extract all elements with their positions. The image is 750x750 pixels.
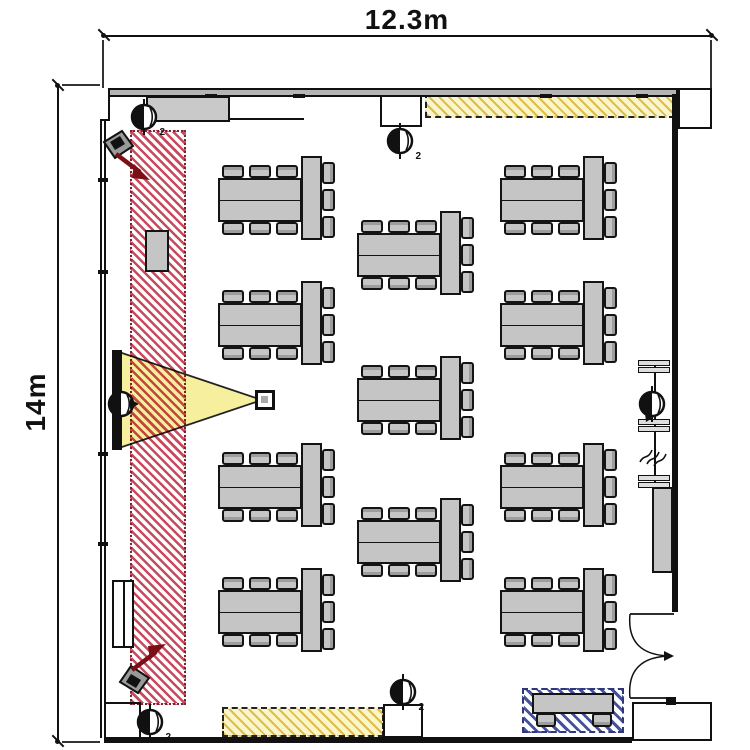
- chair: [558, 347, 580, 360]
- chair: [415, 277, 437, 290]
- chair: [504, 577, 526, 590]
- fixture-count: 2: [418, 702, 424, 713]
- floor-plan: 12.3m 14m: [0, 0, 750, 750]
- chair: [504, 222, 526, 235]
- fixture-count: 2: [415, 151, 421, 162]
- table: [357, 233, 441, 277]
- chair: [361, 277, 383, 290]
- table-seam: [220, 487, 300, 488]
- chair: [322, 574, 335, 596]
- ceiling-speaker-icon: 2: [383, 122, 417, 160]
- partition-stack-bar: [638, 360, 670, 366]
- chair: [461, 389, 474, 411]
- bottom-storage-zone: [222, 707, 384, 737]
- table-seam: [502, 612, 582, 613]
- chair: [604, 162, 617, 184]
- ceiling-speaker-icon: 2: [386, 673, 420, 711]
- chair: [322, 503, 335, 525]
- ceiling-speaker-icon: [635, 385, 669, 423]
- chair: [276, 634, 298, 647]
- top-wall-tick: [636, 94, 648, 98]
- ceiling-speaker-glyph: [383, 122, 417, 160]
- chair: [322, 216, 335, 238]
- table-group: [218, 568, 335, 656]
- chair: [388, 277, 410, 290]
- chair: [592, 713, 612, 727]
- chair: [322, 314, 335, 336]
- table-seam: [502, 200, 582, 201]
- stage-speaker-icon: [112, 634, 170, 698]
- table-group: [218, 443, 335, 531]
- room: 2 2 2: [0, 0, 750, 750]
- table: [583, 568, 604, 652]
- chair: [558, 222, 580, 235]
- chair: [531, 222, 553, 235]
- ceiling-speaker-glyph: [635, 385, 669, 423]
- table: [218, 178, 302, 222]
- table-group: [500, 443, 617, 531]
- chair: [558, 452, 580, 465]
- chair: [604, 341, 617, 363]
- chair: [504, 452, 526, 465]
- chair: [531, 577, 553, 590]
- table: [301, 443, 322, 527]
- chair: [388, 422, 410, 435]
- chair: [604, 287, 617, 309]
- table: [218, 590, 302, 634]
- chair: [531, 509, 553, 522]
- left-wall-step-v: [108, 88, 110, 121]
- table: [301, 156, 322, 240]
- table: [500, 590, 584, 634]
- table-seam: [220, 325, 300, 326]
- chair: [249, 165, 271, 178]
- ceiling-speaker-glyph: [386, 673, 420, 711]
- chair: [604, 476, 617, 498]
- chair: [604, 574, 617, 596]
- projector: [255, 390, 275, 410]
- table: [583, 281, 604, 365]
- chair: [531, 452, 553, 465]
- partition-stack-bar: [638, 367, 670, 373]
- chair: [415, 564, 437, 577]
- table-group: [500, 156, 617, 244]
- table: [500, 178, 584, 222]
- chair: [558, 634, 580, 647]
- chair: [276, 452, 298, 465]
- table: [583, 156, 604, 240]
- table-seam: [359, 255, 439, 256]
- chair: [249, 577, 271, 590]
- chair: [461, 244, 474, 266]
- table: [357, 520, 441, 564]
- left-wall-tick: [98, 542, 108, 546]
- fixture-count: 2: [159, 127, 165, 138]
- chair: [361, 220, 383, 233]
- chair: [276, 222, 298, 235]
- chair: [322, 341, 335, 363]
- chair: [604, 503, 617, 525]
- double-door: [618, 606, 678, 706]
- partition-stack-bar: [638, 426, 670, 432]
- table: [440, 498, 461, 582]
- projector-lens: [261, 396, 268, 403]
- chair: [461, 217, 474, 239]
- partition-stack-bar: [638, 482, 670, 488]
- chair: [504, 290, 526, 303]
- sound-desk-shelf-line: [228, 118, 304, 120]
- chair: [461, 416, 474, 438]
- left-wall: [100, 120, 106, 738]
- chair: [531, 165, 553, 178]
- chair: [604, 628, 617, 650]
- chair: [415, 507, 437, 520]
- table-seam: [502, 487, 582, 488]
- chair: [531, 290, 553, 303]
- chair: [222, 165, 244, 178]
- chair: [504, 509, 526, 522]
- chair: [361, 422, 383, 435]
- table: [500, 465, 584, 509]
- chair: [249, 634, 271, 647]
- chair: [604, 216, 617, 238]
- top-right-exterior-box: [678, 88, 712, 129]
- table-group: [218, 281, 335, 369]
- chair: [222, 509, 244, 522]
- chair: [249, 509, 271, 522]
- chair: [558, 577, 580, 590]
- left-wall-tick: [98, 270, 108, 274]
- chair: [415, 365, 437, 378]
- table-group: [357, 356, 474, 444]
- table: [301, 568, 322, 652]
- chair: [604, 601, 617, 623]
- chair: [461, 531, 474, 553]
- chair: [388, 220, 410, 233]
- chair: [361, 507, 383, 520]
- ceiling-speaker-icon: 2: [133, 703, 167, 741]
- chair: [558, 165, 580, 178]
- chair: [531, 347, 553, 360]
- chair: [604, 314, 617, 336]
- chair: [504, 165, 526, 178]
- table: [218, 303, 302, 347]
- chair: [415, 220, 437, 233]
- chair: [388, 564, 410, 577]
- table-seam: [359, 400, 439, 401]
- table: [301, 281, 322, 365]
- podium: [145, 230, 169, 272]
- chair: [276, 577, 298, 590]
- break-squiggles: [638, 438, 672, 468]
- chair: [461, 271, 474, 293]
- table-group: [500, 281, 617, 369]
- table-group: [357, 211, 474, 299]
- chair: [504, 634, 526, 647]
- chair: [604, 189, 617, 211]
- table: [440, 211, 461, 295]
- table: [500, 303, 584, 347]
- chair: [322, 189, 335, 211]
- chair: [222, 222, 244, 235]
- chair: [322, 162, 335, 184]
- left-wall-step-h: [100, 119, 110, 121]
- chair: [276, 290, 298, 303]
- table-seam: [502, 325, 582, 326]
- top-wall-tick: [540, 94, 552, 98]
- ceiling-speaker-glyph: [133, 703, 167, 741]
- chair: [322, 287, 335, 309]
- ceiling-speaker-icon: [104, 385, 138, 423]
- table-group: [357, 498, 474, 586]
- chair: [461, 504, 474, 526]
- chair: [461, 362, 474, 384]
- chair: [222, 577, 244, 590]
- table: [218, 465, 302, 509]
- table-seam: [359, 542, 439, 543]
- chair: [322, 601, 335, 623]
- stage-speaker-icon: [96, 126, 154, 190]
- left-wall-tick: [98, 452, 108, 456]
- chair: [604, 449, 617, 471]
- chair: [222, 290, 244, 303]
- bottom-right-vestibule: [632, 702, 712, 741]
- table-group: [500, 568, 617, 656]
- fixture-count: 2: [165, 732, 171, 743]
- chair: [276, 347, 298, 360]
- chair: [249, 222, 271, 235]
- chair: [322, 628, 335, 650]
- break-squiggle-icon: [638, 438, 672, 468]
- top-wall-tick: [293, 94, 305, 98]
- chair: [249, 347, 271, 360]
- table-group: [218, 156, 335, 244]
- chair: [415, 422, 437, 435]
- table-seam: [220, 612, 300, 613]
- chair: [558, 509, 580, 522]
- chair: [249, 452, 271, 465]
- chair: [504, 347, 526, 360]
- chair: [361, 564, 383, 577]
- stage-speaker-glyph: [96, 126, 154, 190]
- bottom-wall: [104, 737, 632, 743]
- chair: [558, 290, 580, 303]
- chair: [276, 165, 298, 178]
- chair: [531, 634, 553, 647]
- table: [583, 443, 604, 527]
- table: [440, 356, 461, 440]
- partition-stack-bar: [638, 475, 670, 481]
- side-board: [652, 487, 673, 573]
- chair: [249, 290, 271, 303]
- table-seam: [220, 200, 300, 201]
- chair: [222, 347, 244, 360]
- chair: [361, 365, 383, 378]
- table: [357, 378, 441, 422]
- chair: [222, 452, 244, 465]
- chair: [322, 476, 335, 498]
- chair: [388, 365, 410, 378]
- chair: [222, 634, 244, 647]
- chair: [536, 713, 556, 727]
- double-door-arcs: [618, 606, 678, 706]
- chair: [276, 509, 298, 522]
- chair: [322, 449, 335, 471]
- stage-speaker-glyph: [112, 634, 170, 698]
- chair: [461, 558, 474, 580]
- reception-table: [532, 693, 614, 714]
- ceiling-speaker-glyph: [104, 385, 138, 423]
- chair: [388, 507, 410, 520]
